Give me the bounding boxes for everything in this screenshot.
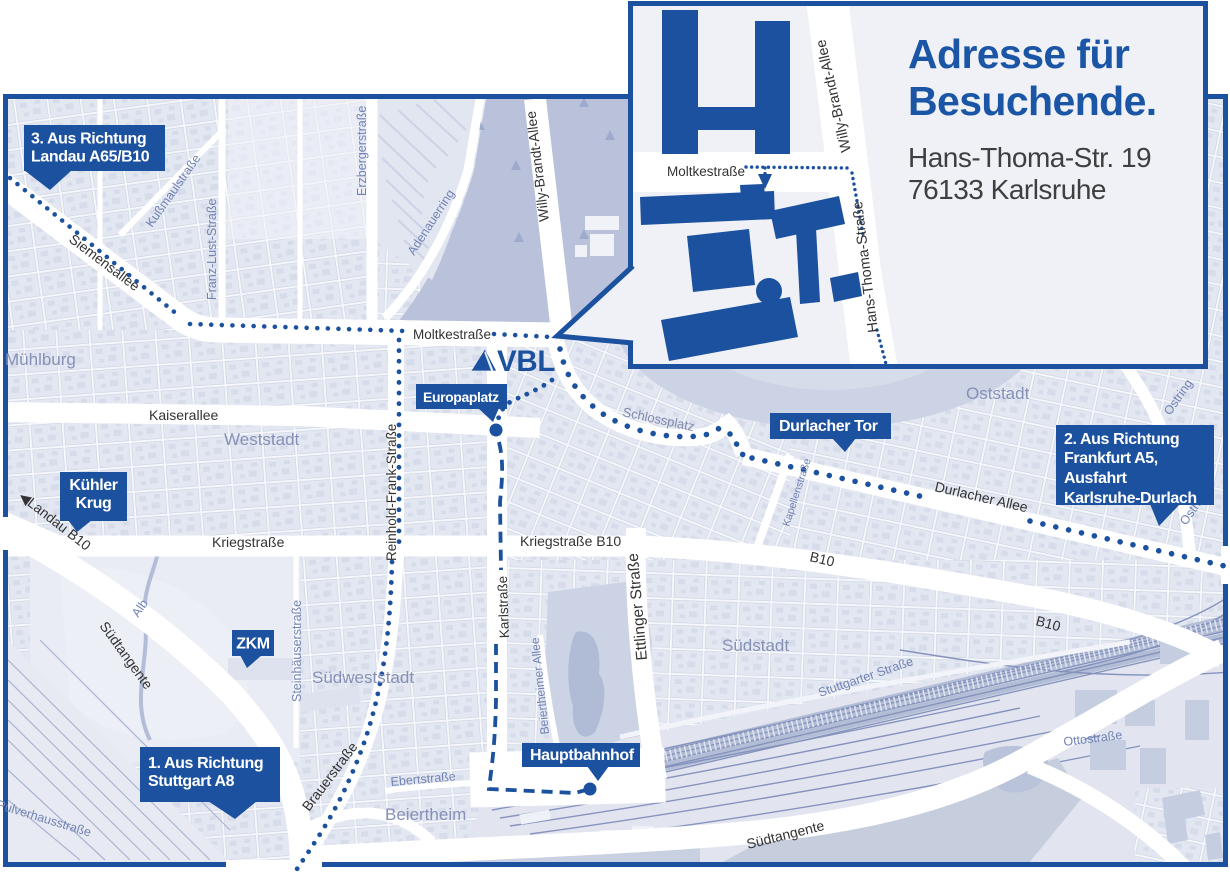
svg-text:ZKM: ZKM bbox=[236, 636, 270, 653]
svg-text:Weststadt: Weststadt bbox=[224, 430, 300, 449]
svg-text:Krug: Krug bbox=[76, 495, 112, 512]
svg-text:Karlstraße: Karlstraße bbox=[495, 576, 512, 639]
svg-text:Adresse für: Adresse für bbox=[908, 31, 1130, 77]
svg-text:Südweststadt: Südweststadt bbox=[312, 668, 414, 687]
svg-text:Stuttgart A8: Stuttgart A8 bbox=[148, 773, 235, 790]
svg-text:Durlacher Tor: Durlacher Tor bbox=[779, 418, 878, 435]
svg-text:Frankfurt A5,: Frankfurt A5, bbox=[1064, 450, 1158, 467]
svg-text:Südstadt: Südstadt bbox=[722, 636, 789, 655]
svg-text:Kaiserallee: Kaiserallee bbox=[149, 407, 218, 423]
svg-text:VBL: VBL bbox=[497, 345, 555, 378]
svg-text:3. Aus Richtung: 3. Aus Richtung bbox=[31, 131, 146, 148]
svg-text:2. Aus Richtung: 2. Aus Richtung bbox=[1064, 431, 1179, 448]
svg-text:Reinhold-Frank-Straße: Reinhold-Frank-Straße bbox=[384, 424, 399, 561]
svg-text:Franz-Lust-Straße: Franz-Lust-Straße bbox=[205, 199, 219, 300]
svg-text:Moltkestraße: Moltkestraße bbox=[413, 327, 491, 342]
svg-text:Mühlburg: Mühlburg bbox=[5, 350, 76, 369]
svg-text:Hans-Thoma-Str. 19: Hans-Thoma-Str. 19 bbox=[908, 142, 1151, 173]
svg-text:Beiertheim: Beiertheim bbox=[385, 805, 466, 824]
svg-text:76133 Karlsruhe: 76133 Karlsruhe bbox=[908, 174, 1106, 205]
svg-text:Hauptbahnhof: Hauptbahnhof bbox=[530, 747, 635, 764]
svg-text:1. Aus Richtung: 1. Aus Richtung bbox=[148, 755, 263, 772]
svg-text:Karlsruhe-Durlach: Karlsruhe-Durlach bbox=[1064, 490, 1197, 507]
svg-text:Besuchende.: Besuchende. bbox=[908, 78, 1157, 124]
svg-text:Erzbergerstraße: Erzbergerstraße bbox=[355, 106, 369, 196]
svg-text:Kühler: Kühler bbox=[69, 477, 117, 494]
svg-text:Kriegstraße: Kriegstraße bbox=[212, 534, 285, 550]
svg-text:Ausfahrt: Ausfahrt bbox=[1064, 470, 1128, 487]
svg-text:Europaplatz: Europaplatz bbox=[423, 389, 499, 405]
svg-text:Kriegstraße B10: Kriegstraße B10 bbox=[520, 533, 621, 549]
svg-text:Moltkestraße: Moltkestraße bbox=[667, 164, 745, 179]
svg-text:Steinhäuserstraße: Steinhäuserstraße bbox=[290, 600, 304, 702]
svg-text:Oststadt: Oststadt bbox=[966, 384, 1030, 403]
svg-text:Landau A65/B10: Landau A65/B10 bbox=[31, 149, 150, 166]
